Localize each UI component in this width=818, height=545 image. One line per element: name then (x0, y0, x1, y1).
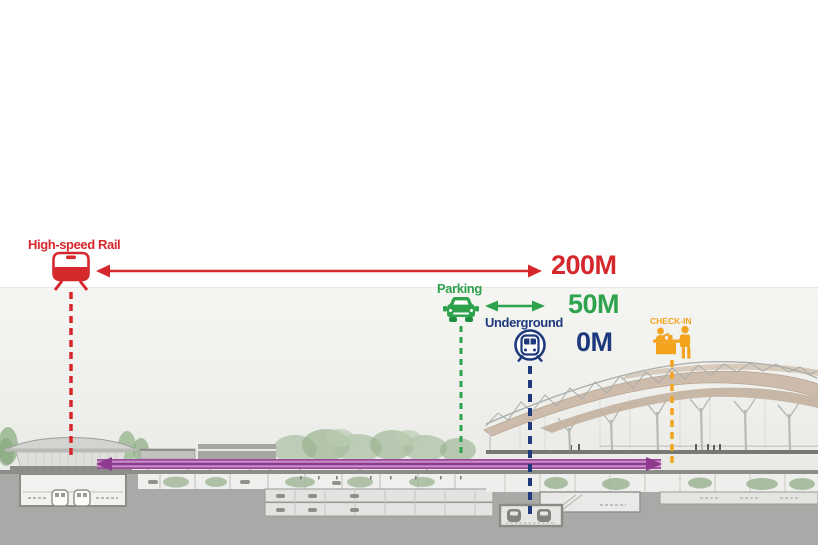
high-speed-rail-label: High-speed Rail (28, 237, 120, 252)
hsr-underground-platform (20, 474, 126, 506)
car-icon (443, 296, 479, 328)
high-speed-rail-distance: 200M (551, 250, 617, 281)
check-in-label: CHECK-IN (650, 316, 692, 326)
cross-section-illustration (0, 0, 818, 545)
train-front-icon (52, 251, 90, 296)
metro-circle-icon (510, 328, 550, 373)
underground-parking-levels (265, 489, 493, 516)
airport-transit-distance-diagram: High-speed Rail 200M Parking 50M Undergr… (0, 0, 818, 545)
underground-label: Underground (485, 315, 563, 330)
underground-concourse (138, 474, 486, 489)
underground-distance: 0M (576, 327, 613, 358)
parking-label: Parking (437, 281, 482, 296)
check-in-desk-icon (652, 325, 694, 364)
hsr-distance-arrow (96, 265, 542, 278)
apm-corridor-arrow (96, 457, 662, 471)
ground-line (0, 470, 818, 474)
parking-distance: 50M (568, 289, 619, 320)
